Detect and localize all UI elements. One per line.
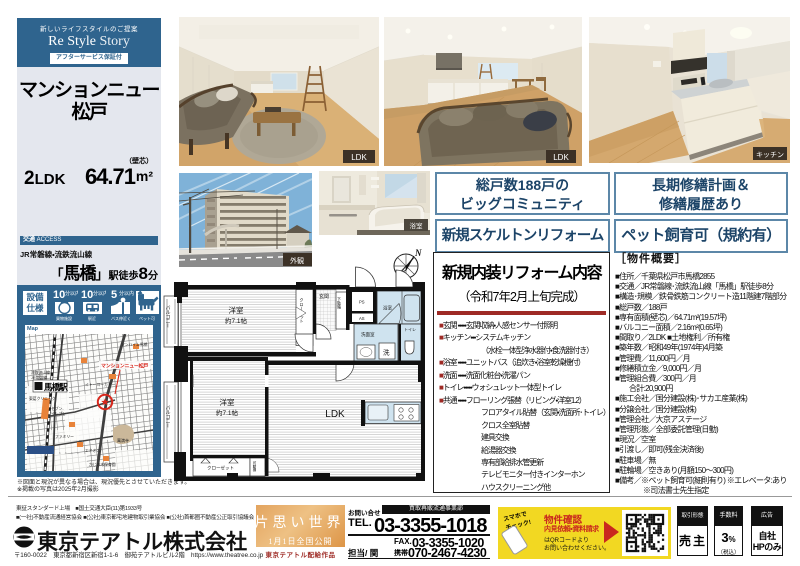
svg-text:流鉄流山線: 流鉄流山線 — [31, 370, 50, 375]
svg-text:分以内: 分以内 — [119, 290, 134, 297]
svg-text:ファミリー: ファミリー — [55, 434, 74, 439]
svg-text:分以内: 分以内 — [65, 290, 78, 297]
svg-text:玄関: 玄関 — [319, 293, 329, 300]
svg-text:10: 10 — [81, 289, 93, 301]
svg-text:JR常磐線: JR常磐線 — [31, 375, 47, 380]
svg-text:LDK: LDK — [351, 153, 367, 162]
svg-text:バルコニー: バルコニー — [165, 405, 171, 428]
svg-text:下駄箱: 下駄箱 — [337, 297, 342, 310]
svg-text:AS: AS — [359, 316, 365, 321]
svg-text:イレブン: イレブン — [51, 411, 66, 416]
svg-text:イトーヨーカドー: イトーヨーカドー — [85, 382, 116, 387]
svg-text:マンハイム馬橋: マンハイム馬橋 — [121, 342, 148, 347]
svg-text:洗面室: 洗面室 — [361, 331, 375, 338]
svg-text:バルコニー: バルコニー — [165, 305, 171, 328]
svg-text:10: 10 — [53, 289, 65, 301]
svg-text:東葛クリニック: 東葛クリニック — [29, 396, 56, 401]
svg-text:分以内: 分以内 — [93, 290, 106, 297]
svg-text:萬満寺: 萬満寺 — [117, 437, 129, 443]
svg-text:洋室: 洋室 — [229, 305, 244, 315]
svg-text:約7.1帖: 約7.1帖 — [216, 408, 239, 417]
svg-text:洋室: 洋室 — [220, 397, 235, 407]
svg-text:マンションニュー松戸: マンションニュー松戸 — [101, 363, 148, 370]
svg-text:約7.1帖: 約7.1帖 — [225, 316, 248, 325]
svg-text:馬橋駅: 馬橋駅 — [44, 382, 68, 392]
svg-text:バス停近く: バス停近く — [111, 315, 131, 321]
svg-text:PS: PS — [359, 300, 365, 305]
svg-text:LDK: LDK — [553, 153, 569, 162]
svg-text:セブン-: セブン- — [51, 406, 64, 411]
svg-text:キッチン: キッチン — [756, 151, 784, 159]
svg-text:クローゼット: クローゼット — [207, 465, 234, 472]
svg-text:浴室: 浴室 — [410, 221, 424, 230]
svg-text:可動棚: 可動棚 — [252, 460, 257, 472]
svg-text:LDK: LDK — [325, 409, 345, 420]
svg-text:駅近: 駅近 — [88, 315, 96, 321]
svg-text:洗: 洗 — [383, 348, 390, 357]
svg-text:買物施設: 買物施設 — [56, 315, 72, 321]
svg-text:かじの木保育園: かじの木保育園 — [89, 462, 116, 467]
svg-text:ペット可: ペット可 — [139, 315, 155, 321]
svg-text:トイレ: トイレ — [404, 327, 416, 332]
svg-text:エネオス: エネオス — [85, 448, 100, 453]
svg-text:5: 5 — [111, 289, 117, 301]
svg-text:浴室: 浴室 — [383, 305, 392, 312]
